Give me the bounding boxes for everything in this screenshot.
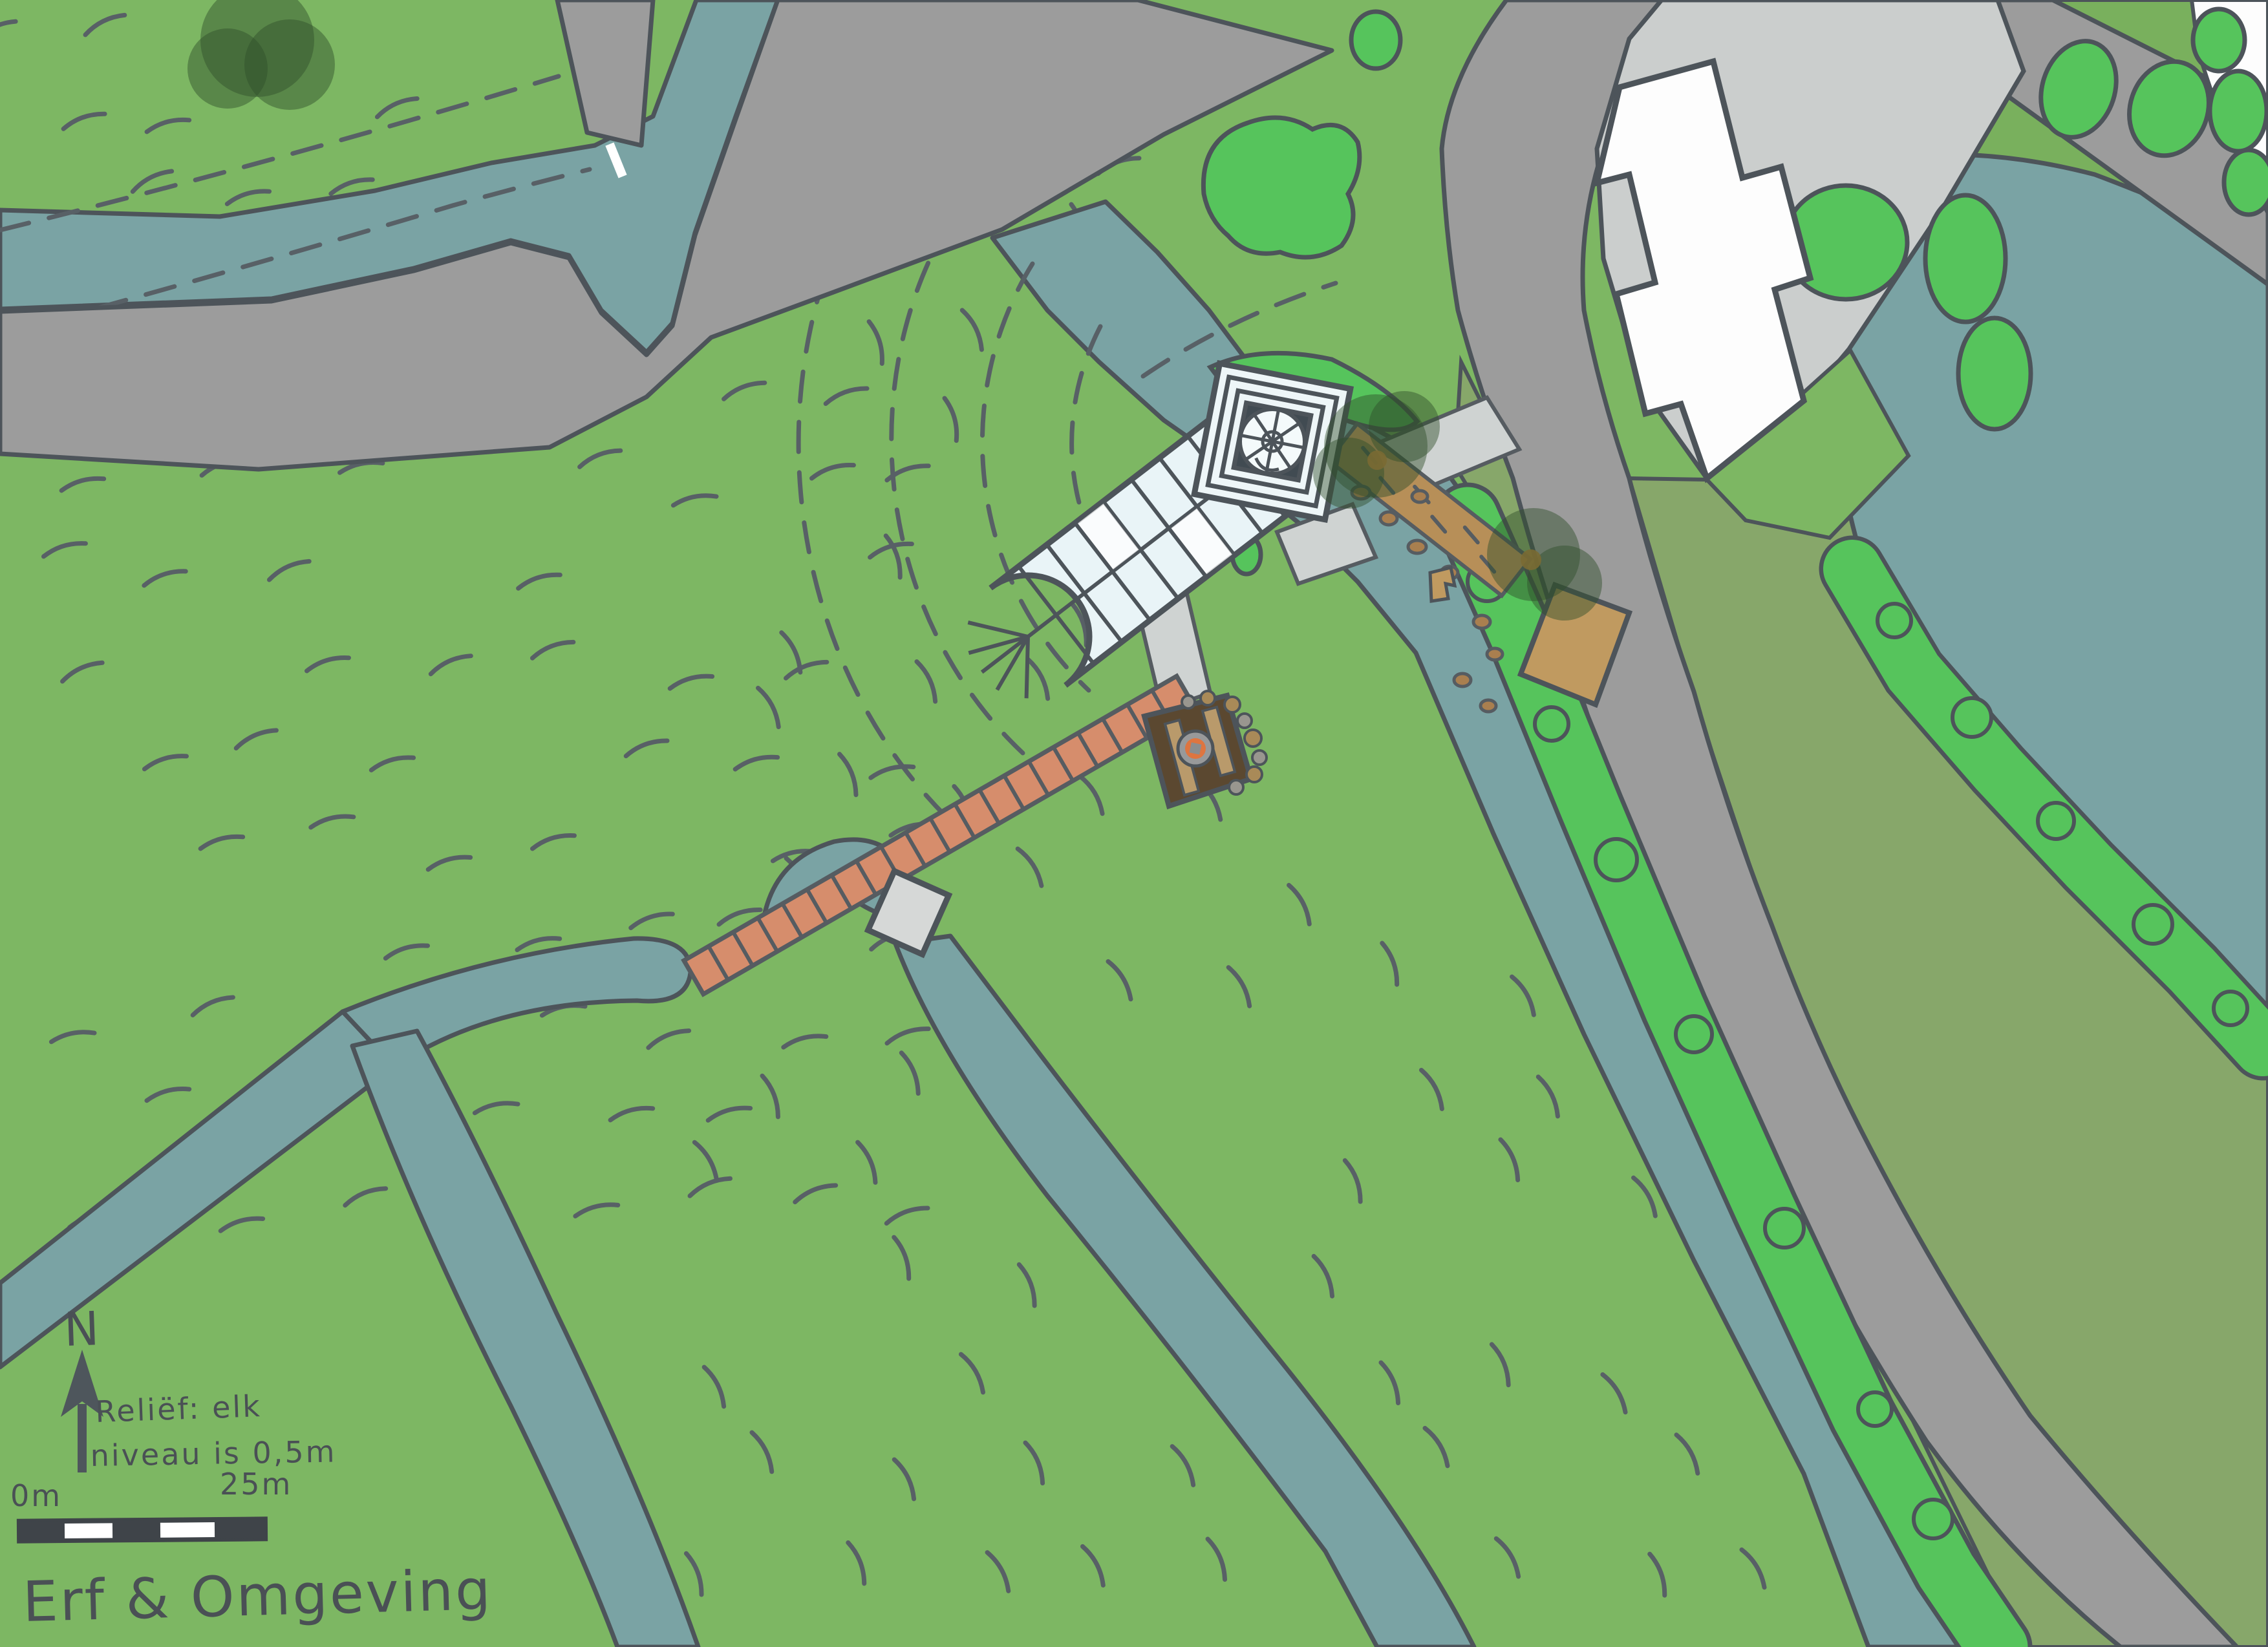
- tree-trunk-dot-2: [1521, 549, 1541, 570]
- map-title: Erf & Omgeving: [22, 1558, 493, 1635]
- scale-start-label: 0m: [10, 1478, 62, 1513]
- relief-note-line1: Reliëf: elk: [94, 1388, 262, 1429]
- fire-pit: [1178, 731, 1213, 766]
- bush-small-topstrip: [1351, 12, 1400, 69]
- tree-lot-east-2: [1925, 195, 2006, 322]
- relief-note-line2: niveau is 0,5m: [90, 1434, 337, 1473]
- site-plan: N Reliëf: elk niveau is 0,5m 0m 25m Erf …: [0, 0, 2268, 1647]
- scale-end-label: 25m: [220, 1467, 292, 1502]
- bush-white-corner-3: [2224, 150, 2268, 215]
- north-label: N: [63, 1301, 102, 1357]
- bush-white-corner-1: [2193, 9, 2245, 71]
- scale-bar: [18, 1518, 266, 1542]
- bush-scallop-top: [1203, 118, 1359, 257]
- bush-white-corner-2: [2210, 71, 2267, 151]
- tree-trunk-dot-1: [1367, 451, 1387, 470]
- tree-lot-east-3: [1958, 318, 2031, 429]
